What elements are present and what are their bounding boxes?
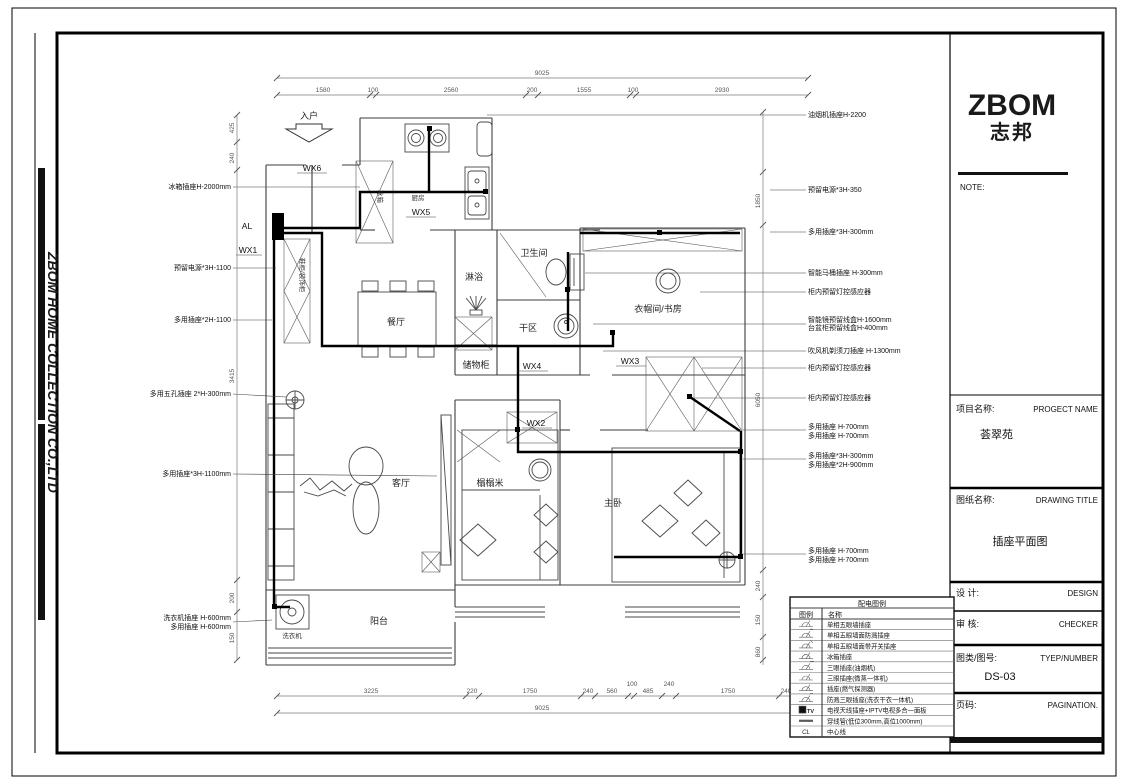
circuit-labels: AL WX1 WX2 WX3 WX4 WX5 WX6 [236, 163, 646, 428]
shoe-cabinet-box [284, 239, 310, 343]
drawing-title: 插座平面图 [993, 534, 1048, 548]
dim-left: 200 [229, 592, 236, 603]
room-dining: 餐厅 [387, 316, 405, 327]
room-closet: 衣帽间/书房 [634, 303, 682, 314]
dim-left: 150 [229, 632, 236, 643]
dim-bottom-seg: 485 [643, 688, 654, 695]
title-bottom-bar [950, 737, 1103, 743]
tv-wall [441, 415, 451, 565]
dim-right: 1850 [755, 193, 762, 208]
coffee-table [300, 447, 383, 534]
legend-row-name: 防溅三眼插座(洗衣干衣一体机) [827, 695, 913, 704]
furniture [268, 122, 740, 658]
design-en: DESIGN [1067, 589, 1098, 598]
legend-row-name: 冰箱插座 [827, 652, 852, 661]
kitchen-sink [465, 122, 492, 219]
legend-col-symbol: 图例 [799, 610, 813, 619]
annotation-multi-socket-600: 多用插座 H-600mm [170, 622, 231, 631]
annotation-multi-socket-300: 多用插座*3H-300mm [808, 227, 874, 236]
annotation-reserved-power-right: 预留电源*3H-350 [808, 185, 862, 194]
annotation-multi-socket-3h: 多用插座*3H-1100mm [162, 469, 231, 478]
page-en: PAGINATION. [1048, 701, 1098, 710]
annotation-basin-cabinet-box: 台盆柜预留线盒H-400mm [808, 323, 888, 332]
project-label: 项目名称: [956, 403, 995, 414]
room-dry: 干区 [519, 323, 537, 333]
annotations-right: 油烟机插座H-2200 预留电源*3H-350 多用插座*3H-300mm 智能… [487, 110, 901, 564]
annotation-multi-socket-700c: 多用插座 H-700mm [808, 546, 869, 555]
drawing-label: 图纸名称: [956, 494, 995, 505]
windows [268, 607, 740, 658]
dim-bottom-total: 9025 [535, 705, 550, 712]
note-label: NOTE: [960, 183, 984, 192]
room-tatami: 榻榻米 [476, 477, 503, 488]
annotation-multi-socket-700a: 多用插座 H-700mm [808, 422, 869, 431]
shower-head [466, 296, 486, 315]
legend-row-name: 单相五眼墙面防溅插座 [827, 631, 890, 640]
wiring [272, 126, 743, 609]
annotation-smart-toilet-socket: 智能马桶插座 H-300mm [808, 268, 883, 277]
socket-crosshair-symbol [286, 391, 304, 409]
dim-bottom-seg: 240 [664, 681, 675, 688]
company-name: ZBOM HOME COLLECTION CO.,LTD [45, 251, 61, 493]
annotation-multi-socket-700d: 多用插座 H-700mm [808, 555, 869, 564]
annotation-hood-socket: 油烟机插座H-2200 [808, 110, 866, 119]
toilet [546, 254, 584, 290]
svg-text:CL: CL [802, 730, 810, 736]
room-labels: 厨房 餐厅 淋浴 卫生间 干区 储物柜 衣帽间/书房 客厅 榻榻米 主卧 阳台 … [282, 190, 682, 640]
closet-stool [656, 269, 680, 293]
wx6-label: WX6 [303, 163, 322, 173]
washing-machine [276, 595, 309, 629]
annotation-smart-mirror-box: 智能镜预留线盒H-1600mm [808, 315, 892, 324]
distribution-panel [272, 213, 284, 240]
wx1-label: WX1 [239, 245, 258, 255]
number-en: TYEP/NUMBER [1040, 654, 1098, 663]
strip-bar-top [38, 168, 45, 420]
number-label: 图类/图号: [956, 652, 997, 663]
wx3-label: WX3 [621, 356, 640, 366]
annotation-cabinet-sensor-3: 柜内预留灯控感应器 [808, 393, 871, 402]
design-label: 设 计: [956, 587, 979, 598]
dim-bottom-seg: 100 [627, 681, 638, 688]
room-balcony: 阳台 [370, 615, 388, 626]
strip-bar-bottom [38, 424, 45, 620]
legend-title: 配电图例 [858, 599, 886, 608]
label-washer: 洗衣机 [282, 631, 302, 640]
legend-col-name: 名称 [828, 610, 842, 619]
annotations-left: 冰箱插座H-2000mm 预留电源*3H-1100 多用插座*2H-1100 多… [150, 182, 437, 631]
annotation-multi-socket-3h300: 多用插座*3H-300mm [808, 451, 874, 460]
dim-top-seg: 200 [527, 87, 538, 94]
annotation-fridge-socket: 冰箱插座H-2000mm [168, 182, 231, 191]
legend-row-name: 中心线 [827, 727, 847, 736]
wx2-label: WX2 [527, 418, 546, 428]
legend-row-name: 三眼插座(油烟机) [827, 663, 875, 672]
legend-row-name: 插座(燃气探测器) [827, 684, 875, 693]
plan-walls [266, 118, 745, 665]
label-shoe-cabinet: 鞋柜/装饰柜 [298, 258, 307, 293]
svg-text:TV: TV [807, 709, 814, 715]
room-storage: 储物柜 [462, 359, 489, 370]
project-label-en: PROGECT NAME [1033, 405, 1098, 414]
dim-top-seg: 100 [628, 87, 639, 94]
annotation-hairdryer-socket: 吹风机剃须刀插座 H-1300mm [808, 346, 901, 355]
wx5-label: WX5 [412, 207, 431, 217]
legend-row-name: 电视天线插座+IPTV电视多合一面板 [827, 706, 927, 715]
junction-boxes [272, 126, 743, 609]
al-label: AL [242, 221, 253, 231]
legend-row-name: 单相五眼墙面带开关插座 [827, 641, 896, 650]
dim-left: 240 [229, 152, 236, 163]
page-label: 页码: [956, 700, 977, 710]
basin [554, 314, 578, 338]
drawing-sheet: ZBOM HOME COLLECTION CO.,LTD ZBOM 志邦 NOT… [0, 0, 1127, 784]
check-label: 审 核: [956, 618, 979, 629]
dim-left: 425 [229, 122, 236, 133]
room-kitchen: 厨房 [412, 193, 425, 202]
room-living: 客厅 [392, 477, 410, 488]
dim-top-total: 9025 [535, 70, 550, 77]
centerline-icon: CL [802, 730, 810, 736]
drawing-label-en: DRAWING TITLE [1036, 496, 1098, 505]
dim-bottom-seg: 1750 [721, 688, 736, 695]
dim-bottom-seg: 1750 [523, 688, 538, 695]
project-name: 荟翠苑 [980, 427, 1013, 441]
floor-plan-canvas: ZBOM HOME COLLECTION CO.,LTD ZBOM 志邦 NOT… [0, 0, 1127, 784]
annotation-washer-socket: 洗衣机插座 H-600mm [163, 613, 231, 622]
annotation-cabinet-sensor-1: 柜内预留灯控感应器 [808, 287, 871, 296]
dim-top-seg: 100 [368, 87, 379, 94]
legend-table: 配电图例 图例 名称 TV CL 单相五眼墙插座 单相五眼墙面防溅插座 单相五眼… [790, 597, 954, 737]
dim-bottom-seg: 240 [583, 688, 594, 695]
wx4-label: WX4 [523, 361, 542, 371]
room-master: 主卧 [604, 497, 622, 508]
master-bed [612, 448, 740, 582]
dim-bottom-seg: 220 [467, 688, 478, 695]
dim-right: 240 [755, 580, 762, 591]
annotation-reserved-power: 预留电源*3H-1100 [174, 263, 231, 272]
label-fridge: 冰箱 [376, 190, 385, 204]
dim-top-seg: 2930 [715, 87, 730, 94]
dim-top-seg: 2560 [444, 87, 459, 94]
dim-right: 6050 [755, 392, 762, 407]
sofa [268, 404, 294, 580]
annotation-multi-socket-700b: 多用插座 H-700mm [808, 431, 869, 440]
dim-top-seg: 1555 [577, 87, 592, 94]
number-value: DS-03 [984, 671, 1015, 683]
entrance-arrow: 入户 [286, 110, 332, 142]
title-rule [958, 172, 1068, 175]
room-bath: 卫生间 [520, 247, 547, 258]
annotation-multi-socket-2h900: 多用插座*2H-900mm [808, 460, 874, 469]
check-en: CHECKER [1059, 620, 1098, 629]
dim-bottom-seg: 3225 [364, 688, 379, 695]
dim-bottom-seg: 560 [607, 688, 618, 695]
entrance-label: 入户 [300, 110, 318, 121]
dim-top-seg: 1580 [316, 87, 331, 94]
dim-left: 3415 [229, 368, 236, 383]
title-block: ZBOM 志邦 NOTE: 项目名称: PROGECT NAME 荟翠苑 图纸名… [950, 89, 1103, 743]
logo-text-en: ZBOM [968, 89, 1056, 122]
annotation-five-hole-socket: 多用五孔插座 2*H-300mm [150, 389, 231, 398]
annotation-multi-socket-2h: 多用插座*2H-1100 [174, 315, 231, 324]
annotation-cabinet-sensor-2: 柜内预留灯控感应器 [808, 363, 871, 372]
legend-row-name: 穿线管(低位300mm,高位1000mm) [827, 716, 923, 725]
legend-row-name: 三眼插座(微蒸一体机) [827, 674, 888, 683]
legend-row-name: 单相五眼墙插座 [827, 620, 871, 629]
dim-right: 150 [755, 614, 762, 625]
room-shower: 淋浴 [465, 271, 483, 282]
logo-text-cn: 志邦 [990, 120, 1034, 144]
dim-right: 860 [755, 646, 762, 657]
